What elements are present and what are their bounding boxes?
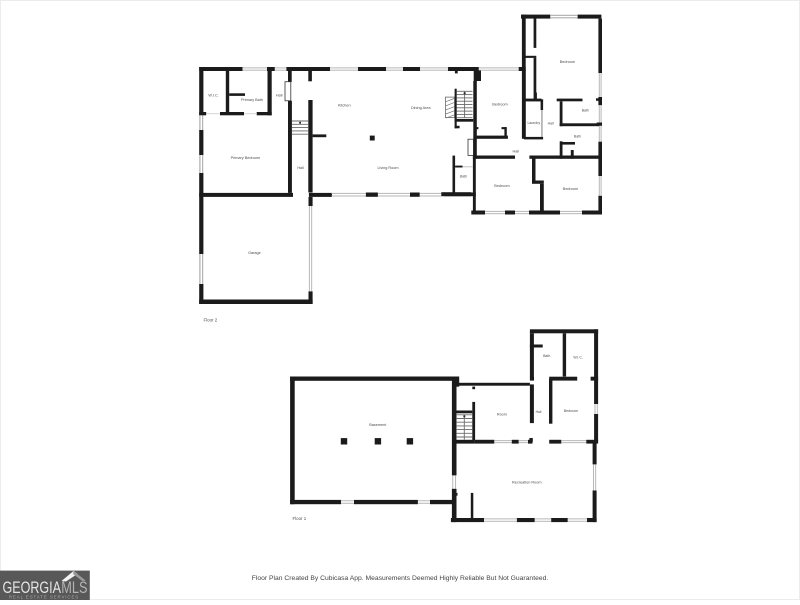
svg-text:Laundry: Laundry	[527, 121, 540, 125]
svg-text:REAL ESTATE SERVICES: REAL ESTATE SERVICES	[9, 595, 79, 600]
svg-text:Bath: Bath	[582, 109, 589, 113]
svg-text:Recreation Room: Recreation Room	[512, 481, 542, 485]
svg-text:Primary Bedroom: Primary Bedroom	[231, 156, 261, 160]
svg-text:Primary Bath: Primary Bath	[241, 98, 263, 102]
svg-text:Garage: Garage	[248, 251, 261, 255]
svg-text:Bedroom: Bedroom	[492, 102, 507, 106]
svg-text:Bedroom: Bedroom	[560, 60, 575, 64]
svg-text:Floor 1: Floor 1	[293, 516, 307, 521]
svg-text:Basement: Basement	[369, 423, 387, 427]
svg-text:Bath: Bath	[460, 175, 467, 179]
svg-text:Hall: Hall	[536, 410, 542, 414]
svg-text:W.I.C.: W.I.C.	[208, 93, 218, 97]
svg-text:Dining Area: Dining Area	[411, 106, 432, 110]
svg-text:Bedroom: Bedroom	[494, 184, 509, 188]
svg-text:Floor Plan Created By Cubicasa: Floor Plan Created By Cubicasa App. Meas…	[252, 575, 549, 582]
svg-text:Room: Room	[497, 412, 507, 416]
svg-text:Living Room: Living Room	[377, 166, 398, 170]
svg-text:W.I.C.: W.I.C.	[573, 356, 583, 360]
svg-text:Bedroom: Bedroom	[564, 409, 578, 413]
svg-text:Kitchen: Kitchen	[338, 103, 351, 107]
svg-text:Bath: Bath	[574, 135, 581, 139]
svg-text:Hall: Hall	[276, 93, 283, 97]
svg-text:Hall: Hall	[548, 122, 554, 126]
svg-text:Bath: Bath	[543, 354, 550, 358]
svg-text:Hall: Hall	[513, 150, 520, 154]
svg-text:Bedroom: Bedroom	[563, 187, 578, 191]
svg-text:Floor 2: Floor 2	[204, 318, 218, 323]
svg-text:Hall: Hall	[297, 166, 304, 170]
